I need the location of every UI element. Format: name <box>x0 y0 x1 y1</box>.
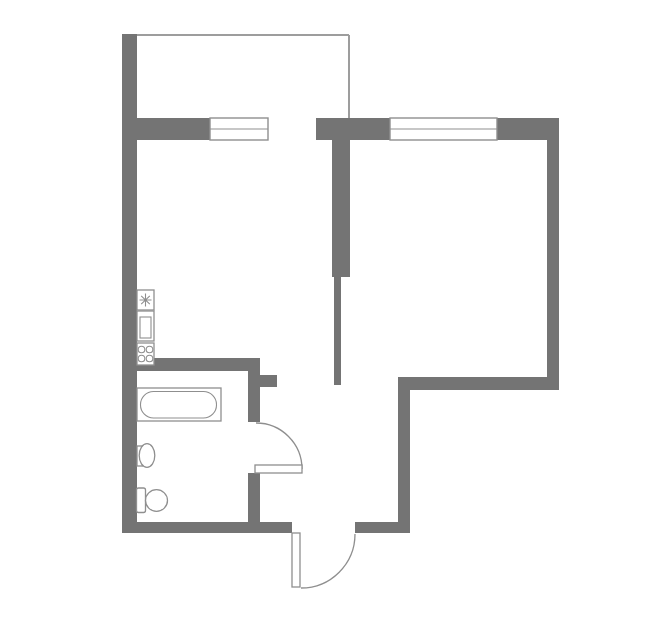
bathroom-door-arc <box>256 423 302 469</box>
bathroom-door-leaf <box>255 465 302 473</box>
entry-door-leaf <box>292 533 300 587</box>
left-wall <box>122 34 137 533</box>
entry-door-arc <box>301 534 355 588</box>
bath-sink-bowl <box>139 444 155 468</box>
hall-right-wall <box>398 377 410 533</box>
floorplan-image <box>0 0 659 635</box>
interior-wall-thin <box>334 277 341 385</box>
bottom-wall-left <box>122 522 292 533</box>
bottom-wall-right <box>355 522 410 533</box>
toilet-bowl <box>146 490 168 512</box>
bathroom-right-wall-upper <box>248 358 260 422</box>
top-wall-left <box>122 118 210 140</box>
bathroom-stub-wall <box>260 375 277 387</box>
top-wall-mid <box>316 118 390 140</box>
floorplan-canvas <box>0 0 659 635</box>
toilet-tank <box>137 488 146 513</box>
bathroom-right-wall-lower <box>248 473 260 533</box>
right-wall <box>547 118 559 390</box>
room-bottom-wall <box>398 377 559 390</box>
interior-wall-thick <box>332 140 350 277</box>
